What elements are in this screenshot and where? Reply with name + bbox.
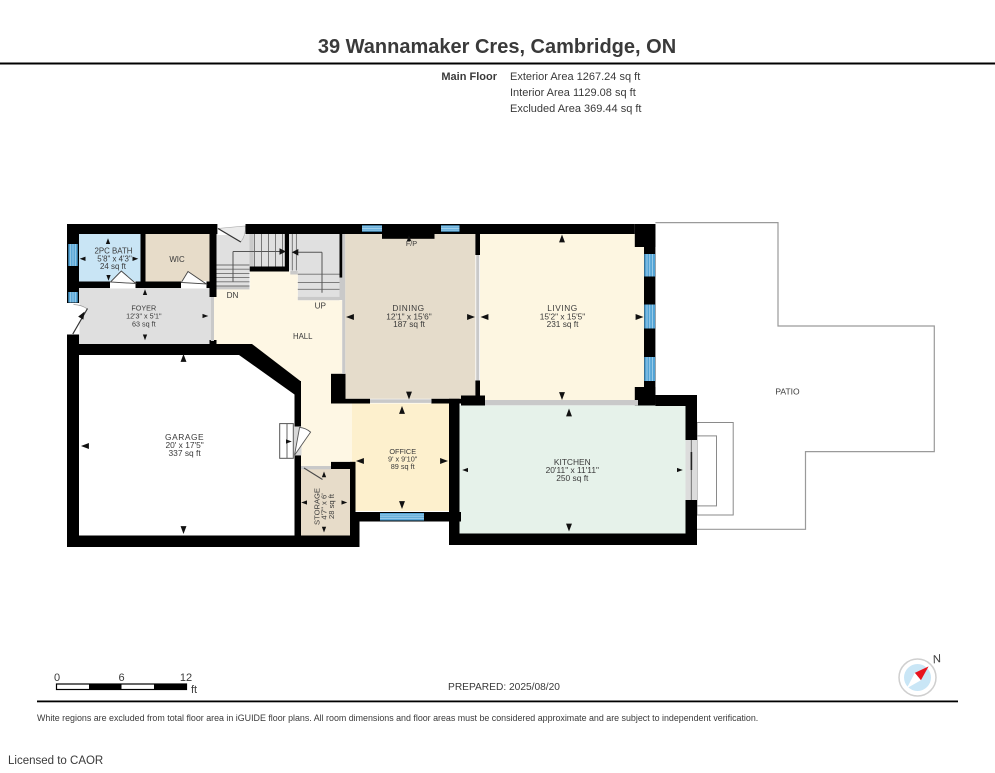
svg-text:187 sq ft: 187 sq ft [393,319,426,329]
svg-text:HALL: HALL [293,332,313,341]
svg-text:12: 12 [180,672,192,684]
svg-text:PATIO: PATIO [775,387,800,397]
svg-text:White regions are excluded fro: White regions are excluded from total fl… [37,713,758,723]
svg-text:ft: ft [191,684,197,696]
svg-text:28 sq ft: 28 sq ft [327,493,336,519]
svg-text:24 sq ft: 24 sq ft [100,262,127,271]
svg-text:6: 6 [118,672,124,684]
svg-text:DN: DN [227,291,239,300]
svg-text:39 Wannamaker Cres, Cambridge,: 39 Wannamaker Cres, Cambridge, ON [318,36,676,58]
svg-text:Licensed to CAOR: Licensed to CAOR [8,755,103,767]
svg-text:250 sq ft: 250 sq ft [556,473,589,483]
svg-text:337 sq ft: 337 sq ft [169,448,202,458]
svg-text:Interior Area 1129.08 sq ft: Interior Area 1129.08 sq ft [510,87,636,99]
svg-text:231 sq ft: 231 sq ft [547,319,580,329]
svg-text:WIC: WIC [169,255,185,264]
svg-text:F/P: F/P [406,239,417,248]
svg-text:0: 0 [54,672,60,684]
svg-text:PREPARED: 2025/08/20: PREPARED: 2025/08/20 [448,682,560,693]
svg-text:Main Floor: Main Floor [441,71,497,83]
svg-text:89 sq ft: 89 sq ft [391,462,415,471]
svg-text:63 sq ft: 63 sq ft [132,319,156,328]
svg-text:Excluded Area 369.44 sq ft: Excluded Area 369.44 sq ft [510,103,641,115]
svg-text:Exterior Area 1267.24 sq ft: Exterior Area 1267.24 sq ft [510,71,640,83]
svg-text:UP: UP [315,301,327,310]
